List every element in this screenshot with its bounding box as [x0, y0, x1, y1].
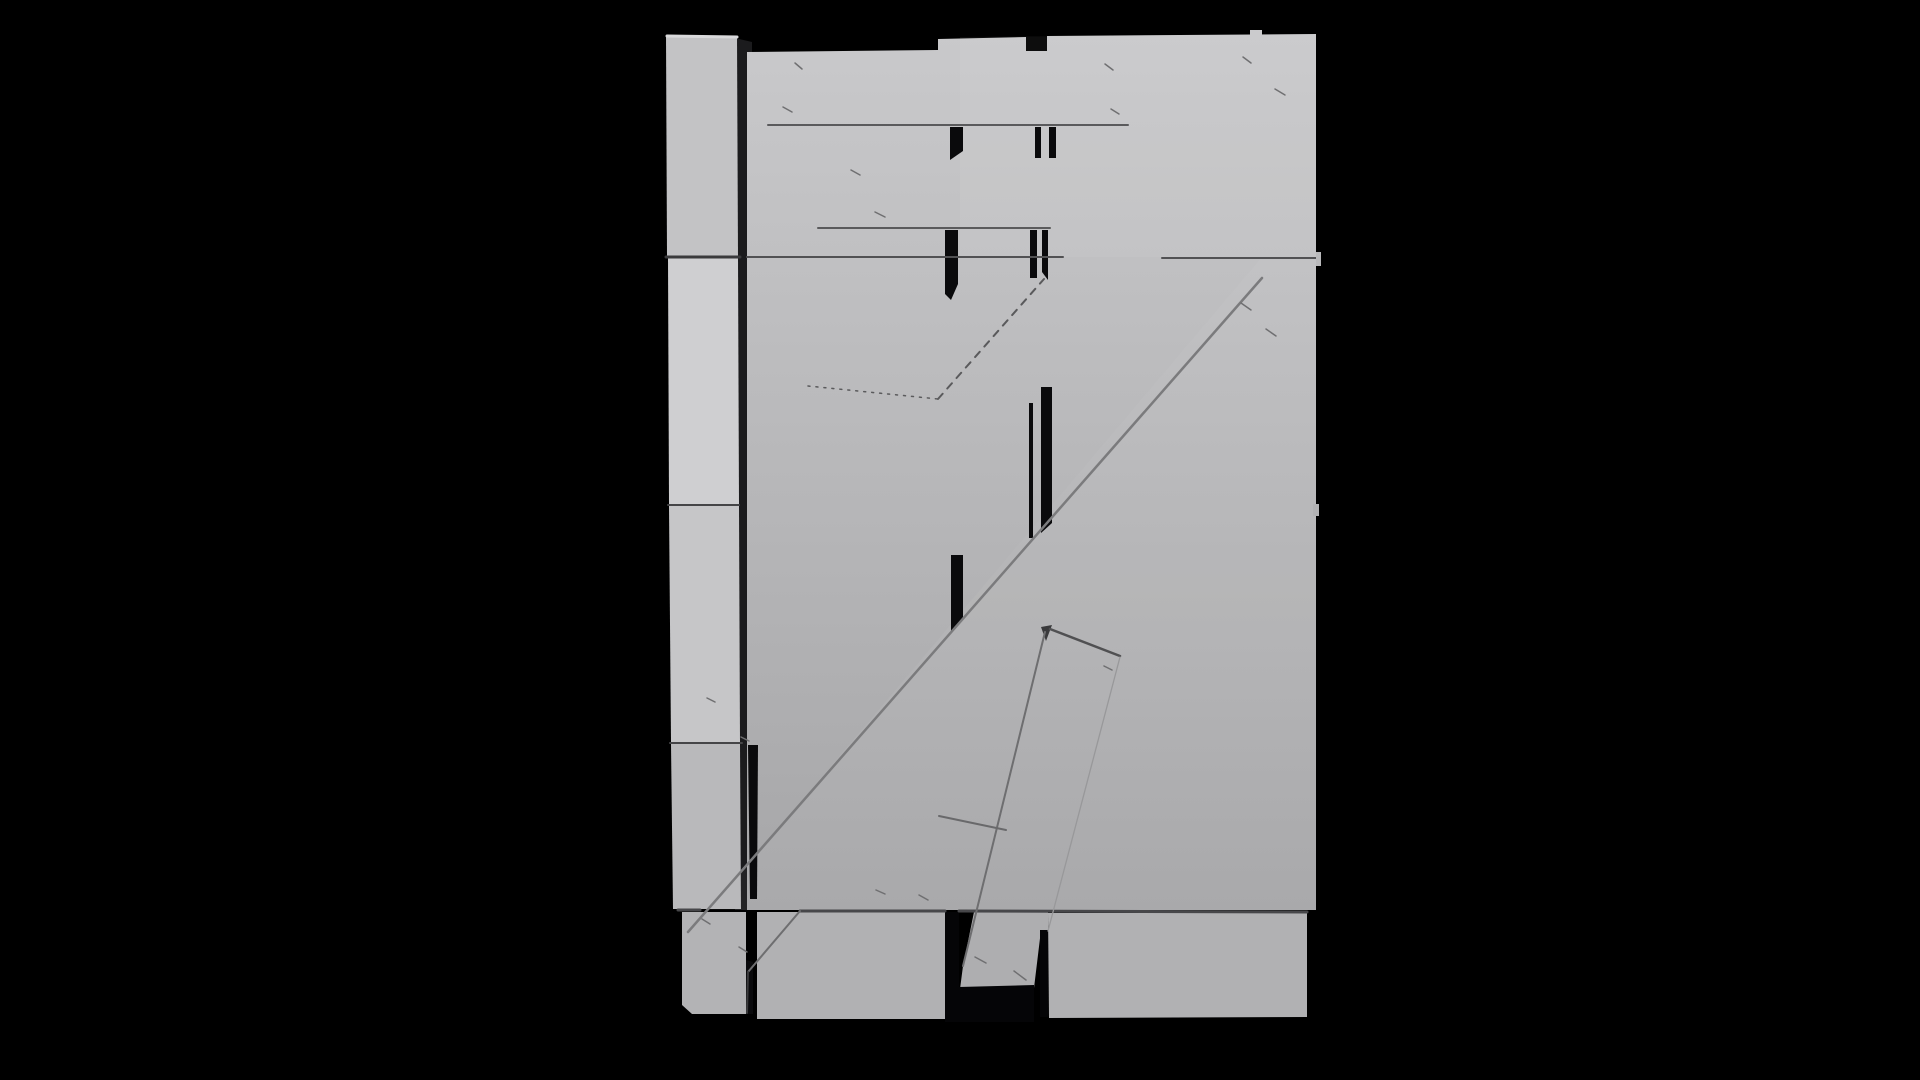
column-top-bevel	[667, 36, 737, 37]
right-edge-tab	[1313, 504, 1319, 516]
plank-slit	[1040, 930, 1048, 1017]
column-segment-3	[669, 506, 740, 742]
plank-seam	[959, 911, 1307, 912]
viewport-background	[0, 0, 1920, 1080]
plank-slit	[945, 912, 959, 1022]
plank-slit	[1030, 230, 1037, 278]
column-segment-2	[668, 258, 739, 504]
plank-slit	[1042, 230, 1048, 280]
diag-brace-end-edge	[747, 972, 748, 1013]
plank-slit	[1035, 127, 1041, 158]
top-right-plank-highlight	[960, 34, 1316, 257]
plank-slit	[1041, 387, 1052, 533]
column-segment-1	[666, 35, 738, 256]
plank-slit	[1029, 403, 1033, 538]
top-edge-bump	[1250, 30, 1262, 36]
right-edge-tab	[1316, 252, 1321, 266]
plank-slit	[1049, 127, 1056, 158]
door-render	[0, 0, 1920, 1080]
brace-underside-shadow	[959, 985, 1034, 1022]
bottom-plank-right	[1048, 913, 1307, 1018]
